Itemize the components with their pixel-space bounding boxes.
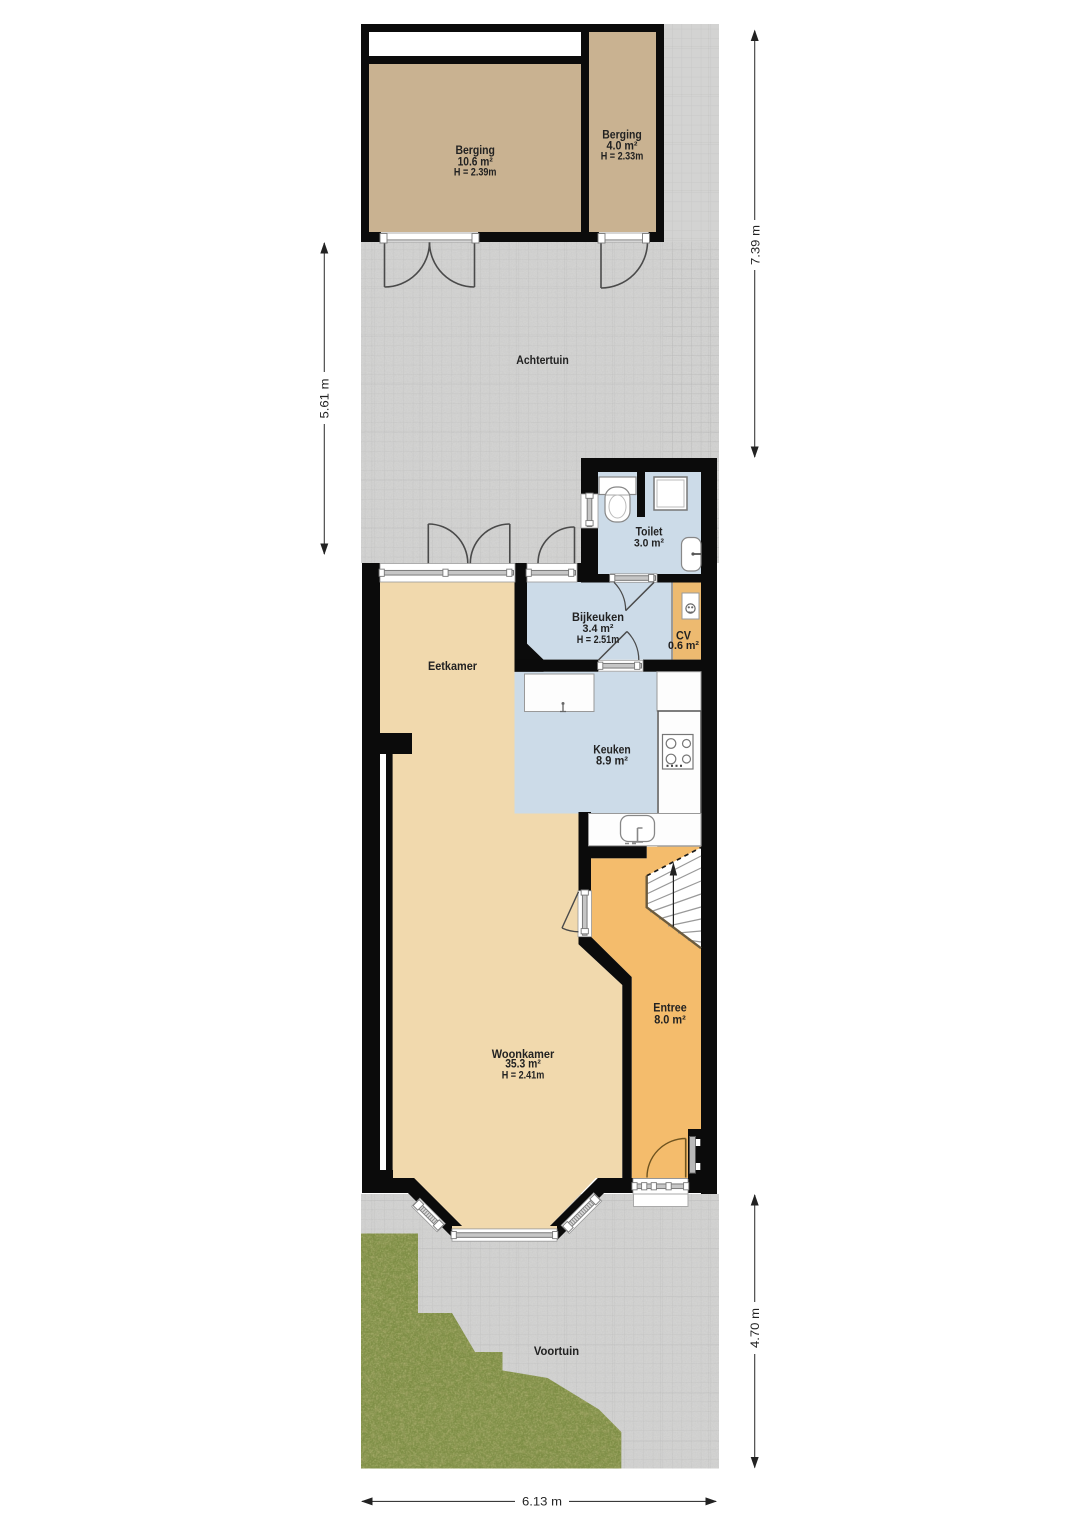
svg-text:H = 2.51m: H = 2.51m: [577, 634, 620, 646]
svg-text:H = 2.33m: H = 2.33m: [601, 151, 644, 163]
svg-text:Entree: Entree: [653, 1001, 687, 1015]
svg-text:Eetkamer: Eetkamer: [428, 659, 477, 673]
svg-text:H = 2.41m: H = 2.41m: [502, 1069, 545, 1081]
svg-text:6.13 m: 6.13 m: [522, 1497, 562, 1509]
svg-text:5.61 m: 5.61 m: [320, 379, 332, 419]
svg-text:Bijkeuken: Bijkeuken: [572, 610, 624, 624]
svg-text:8.9 m²: 8.9 m²: [596, 755, 628, 767]
svg-text:H = 2.39m: H = 2.39m: [454, 167, 497, 179]
svg-text:7.39 m: 7.39 m: [750, 225, 762, 265]
svg-text:Voortuin: Voortuin: [534, 1344, 579, 1358]
svg-text:8.0 m²: 8.0 m²: [654, 1014, 686, 1026]
svg-text:Berging: Berging: [455, 143, 495, 157]
svg-text:3.0 m²: 3.0 m²: [634, 538, 664, 550]
svg-text:Toilet: Toilet: [636, 525, 663, 539]
svg-text:Achtertuin: Achtertuin: [516, 353, 569, 367]
svg-text:4.70 m: 4.70 m: [750, 1308, 762, 1348]
svg-text:Keuken: Keuken: [593, 742, 631, 756]
svg-text:Berging: Berging: [602, 128, 642, 142]
svg-text:0.6 m²: 0.6 m²: [668, 640, 699, 652]
